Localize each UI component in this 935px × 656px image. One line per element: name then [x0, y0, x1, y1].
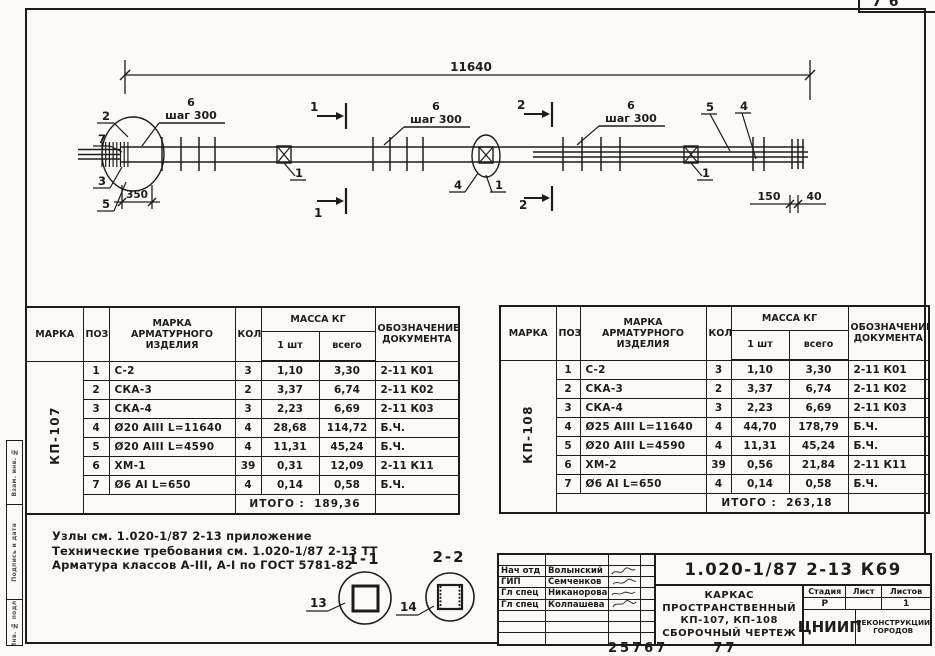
step-label-3: 6 шаг 300: [577, 99, 665, 145]
pos-callout-5: 5: [102, 197, 110, 211]
staff-name: Никанорова: [546, 588, 609, 598]
staff-row: Гл спец Никанорова: [499, 588, 654, 599]
spec-row: 6 ХМ-2 39 0,56 21,84 2-11 К11: [500, 455, 929, 474]
cell-item: Ø20 АIII L=4590: [109, 437, 235, 456]
cell-mass-one: 3,37: [261, 380, 319, 399]
cell-doc: Б.Ч.: [375, 475, 459, 494]
dim-150-label: 150: [758, 190, 781, 203]
cell-doc: Б.Ч.: [848, 436, 929, 455]
cell-mass-one: 1,10: [731, 360, 789, 379]
cell-item: СКА-4: [109, 399, 235, 418]
cell-qty: 4: [235, 475, 261, 494]
side-stamp-box: Инв. № подл.: [6, 599, 23, 646]
header-mark: МАРКА: [500, 306, 556, 360]
cell-mass-one: 11,31: [261, 437, 319, 456]
side-stamp-box: Подпись и дата: [6, 504, 23, 599]
header-pos: ПОЗ: [83, 307, 109, 361]
signature: [609, 600, 641, 610]
beam-assembly-drawing: 11640 2 7 3 5: [23, 10, 928, 302]
cell-item: СКА-3: [109, 380, 235, 399]
fixing-plate-2-circled: 4 1: [449, 135, 506, 192]
section-mark-1-top: 1: [310, 100, 346, 129]
cell-pos: 4: [83, 418, 109, 437]
cell-mass-total: 3,30: [319, 361, 375, 380]
header-mass-one: 1 шт: [731, 330, 789, 360]
cell-mass-one: 0,56: [731, 455, 789, 474]
cell-mass-one: 0,14: [261, 475, 319, 494]
cell-mass-one: 1,10: [261, 361, 319, 380]
cell-item: Ø6 АI L=650: [109, 475, 235, 494]
section-detail-1-1: 1-1 13: [306, 550, 391, 624]
cell-pos: 5: [556, 436, 580, 455]
cell-doc: Б.Ч.: [848, 474, 929, 493]
cell-mass-total: 45,24: [789, 436, 848, 455]
empty-cell: [83, 494, 235, 514]
cell-qty: 4: [235, 437, 261, 456]
cell-qty: 39: [235, 456, 261, 475]
pos-callout-6: 6: [187, 96, 195, 109]
spec-total-row: ИТОГО : 189,36: [26, 494, 459, 514]
pos-callout-2: 2: [102, 109, 110, 123]
cell-item: Ø6 АI L=650: [580, 474, 706, 493]
header-mass: МАССА КГ: [731, 306, 848, 330]
header-mass: МАССА КГ: [261, 307, 375, 331]
cell-qty: 2: [706, 379, 731, 398]
cell-mass-one: 3,37: [731, 379, 789, 398]
section-1-1-title: 1-1: [347, 550, 380, 568]
side-stamp-label: Взам. инв. №: [11, 448, 18, 497]
mark-cell: КП-108: [500, 360, 556, 513]
total-value: 263,18: [786, 497, 833, 509]
stage-value: Р: [804, 598, 846, 609]
header-item: МАРКА АРМАТУРНОГО ИЗДЕЛИЯ: [109, 307, 235, 361]
cell-doc: 2-11 К03: [375, 399, 459, 418]
empty-cell: [556, 493, 706, 513]
cell-mass-total: 3,30: [789, 360, 848, 379]
pos-callout-5: 5: [706, 100, 714, 114]
cell-item: Ø20 АIII L=4590: [580, 436, 706, 455]
cell-qty: 4: [235, 418, 261, 437]
header-doc: ОБОЗНАЧЕНИЕ ДОКУМЕНТА: [375, 307, 459, 361]
spec-table-kp107: МАРКА ПОЗ МАРКА АРМАТУРНОГО ИЗДЕЛИЯ КОЛ …: [25, 306, 460, 515]
spec-row: КП-107 1 С-2 3 1,10 3,30 2-11 К01: [26, 361, 459, 380]
cell-pos: 2: [83, 380, 109, 399]
cell-mass-total: 45,24: [319, 437, 375, 456]
staff-role: Нач отд: [499, 566, 546, 576]
callout-14: 14: [400, 600, 417, 614]
header-qty: КОЛ: [706, 306, 731, 360]
cell-doc: 2-11 К02: [375, 380, 459, 399]
spec-row: 7 Ø6 АI L=650 4 0,14 0,58 Б.Ч.: [500, 474, 929, 493]
header-pos: ПОЗ: [556, 306, 580, 360]
cell-qty: 39: [706, 455, 731, 474]
step-300-label: шаг 300: [605, 112, 657, 125]
cell-qty: 4: [706, 436, 731, 455]
cell-mass-total: 21,84: [789, 455, 848, 474]
cell-doc: 2-11 К03: [848, 398, 929, 417]
cell-pos: 7: [556, 474, 580, 493]
staff-name: Волынский: [546, 566, 609, 576]
sheet-value: [846, 598, 882, 609]
pos-callout-1: 1: [295, 166, 303, 180]
header-mass-total: всего: [319, 331, 375, 361]
signature: [609, 588, 641, 598]
cell-item: ХМ-2: [580, 455, 706, 474]
staff-name: Семченков: [546, 577, 609, 587]
cell-pos: 3: [83, 399, 109, 418]
cell-mass-one: 44,70: [731, 417, 789, 436]
cell-pos: 2: [556, 379, 580, 398]
header-mass-one: 1 шт: [261, 331, 319, 361]
pos-callout-7: 7: [98, 132, 106, 146]
cell-item: ХМ-1: [109, 456, 235, 475]
spec-row: 6 ХМ-1 39 0,31 12,09 2-11 К11: [26, 456, 459, 475]
sheets-value: 1: [882, 598, 930, 609]
total-cell: ИТОГО : 189,36: [235, 494, 375, 514]
section-mark-1-bottom: 1: [314, 188, 346, 220]
cell-mass-one: 2,23: [261, 399, 319, 418]
pos-callout-4: 4: [740, 99, 748, 113]
overall-dimension-label: 11640: [450, 60, 492, 74]
cell-mass-total: 6,69: [789, 398, 848, 417]
total-cell: ИТОГО : 263,18: [706, 493, 848, 513]
cell-qty: 3: [235, 361, 261, 380]
section-circle: [339, 572, 391, 624]
cell-mass-one: 2,23: [731, 398, 789, 417]
cell-pos: 7: [83, 475, 109, 494]
callout-13: 13: [310, 596, 327, 610]
total-label: ИТОГО :: [249, 498, 304, 510]
pos-callout-3: 3: [98, 174, 106, 188]
stage-header: Стадия: [804, 586, 846, 597]
cell-mass-total: 6,74: [319, 380, 375, 399]
spec-row: 4 Ø25 АIII L=11640 4 44,70 178,79 Б.Ч.: [500, 417, 929, 436]
cell-qty: 2: [235, 380, 261, 399]
mark-label: КП-108: [521, 405, 535, 464]
side-stamp: Взам. инв. № Подпись и дата Инв. № подл.: [6, 440, 23, 646]
header-item: МАРКА АРМАТУРНОГО ИЗДЕЛИЯ: [580, 306, 706, 360]
position-callouts-right: 5 4: [701, 99, 756, 159]
cell-doc: Б.Ч.: [375, 437, 459, 456]
cell-mass-one: 0,14: [731, 474, 789, 493]
header-mass-total: всего: [789, 330, 848, 360]
staff-row: Гл спец Колпашева: [499, 600, 654, 611]
fixing-plate-1: 1: [277, 146, 306, 180]
organization-subtitle: РЕКОНСТРУКЦИИ ГОРОДОВ: [856, 610, 930, 644]
mark-label: КП-107: [48, 406, 62, 465]
pos-callout-1: 1: [495, 178, 503, 192]
signature: [609, 577, 641, 587]
dim-350-label: 350: [126, 189, 148, 201]
section-circle: [426, 573, 474, 621]
section-1-label: 1: [310, 100, 318, 114]
header-qty: КОЛ: [235, 307, 261, 361]
spec-table-kp108: МАРКА ПОЗ МАРКА АРМАТУРНОГО ИЗДЕЛИЯ КОЛ …: [499, 305, 930, 514]
section-detail-2-2: 2-2 14: [396, 548, 474, 621]
pos-callout-6: 6: [627, 99, 635, 112]
document-number: 1.020-1/87 2-13 К69: [656, 555, 930, 586]
cell-mass-total: 114,72: [319, 418, 375, 437]
cell-qty: 3: [706, 398, 731, 417]
cell-item: СКА-3: [580, 379, 706, 398]
signature: [609, 566, 641, 576]
spec-row: 2 СКА-3 2 3,37 6,74 2-11 К02: [26, 380, 459, 399]
cell-mass-total: 0,58: [789, 474, 848, 493]
spec-row: 3 СКА-4 3 2,23 6,69 2-11 К03: [500, 398, 929, 417]
dim-40-label: 40: [806, 190, 822, 203]
cell-item: С-2: [580, 360, 706, 379]
section-mark-2-bottom: 2: [519, 186, 552, 212]
staff-role: ГИП: [499, 577, 546, 587]
staff-name: Колпашева: [546, 600, 609, 610]
note-line: Узлы см. 1.020-1/87 2-13 приложение: [52, 529, 378, 544]
cell-pos: 4: [556, 417, 580, 436]
step-300-label: шаг 300: [410, 113, 462, 126]
cell-mass-one: 11,31: [731, 436, 789, 455]
mark-cell: КП-107: [26, 361, 83, 514]
page-number: 76: [872, 0, 935, 10]
cell-mass-total: 178,79: [789, 417, 848, 436]
cell-doc: Б.Ч.: [375, 418, 459, 437]
header-doc: ОБОЗНАЧЕНИЕ ДОКУМЕНТА: [848, 306, 929, 360]
title-block-staff: Нач отд Волынский ГИП Семченков Гл спец …: [499, 555, 656, 644]
cell-mass-total: 6,74: [789, 379, 848, 398]
cell-pos: 5: [83, 437, 109, 456]
cell-pos: 1: [83, 361, 109, 380]
pos-callout-4: 4: [454, 178, 462, 192]
cell-qty: 3: [235, 399, 261, 418]
position-callouts-left: 2 7 3 5: [93, 109, 128, 211]
drawing-sheet: { "page": { "sheet_number": "76", "archi…: [0, 0, 935, 652]
section-1-label: 1: [314, 206, 322, 220]
cell-doc: 2-11 К11: [375, 456, 459, 475]
cell-doc: 2-11 К11: [848, 455, 929, 474]
spec-row: 7 Ø6 АI L=650 4 0,14 0,58 Б.Ч.: [26, 475, 459, 494]
section-2-2-title: 2-2: [432, 548, 465, 566]
section-2-label: 2: [517, 98, 525, 112]
spec-row: КП-108 1 С-2 3 1,10 3,30 2-11 К01: [500, 360, 929, 379]
staff-row: Нач отд Волынский: [499, 566, 654, 577]
cell-pos: 6: [83, 456, 109, 475]
cell-mass-one: 0,31: [261, 456, 319, 475]
cell-item: Ø25 АIII L=11640: [580, 417, 706, 436]
cell-qty: 4: [706, 474, 731, 493]
title-block: Нач отд Волынский ГИП Семченков Гл спец …: [497, 553, 932, 646]
section-details: 1-1 13 2-2 14: [300, 547, 510, 652]
staff-row: ГИП Семченков: [499, 577, 654, 588]
cell-item: С-2: [109, 361, 235, 380]
step-label-1: 6 шаг 300: [142, 96, 225, 146]
cell-doc: Б.Ч.: [848, 417, 929, 436]
organization-logo: ЦНИИП: [804, 610, 856, 644]
total-label: ИТОГО :: [721, 497, 776, 509]
spec-row: 4 Ø20 АIII L=11640 4 28,68 114,72 Б.Ч.: [26, 418, 459, 437]
fixing-plate-3: 1: [684, 146, 713, 180]
dimension-150-40: 150 40: [750, 190, 826, 213]
spec-row: 2 СКА-3 2 3,37 6,74 2-11 К02: [500, 379, 929, 398]
staff-role: Гл спец: [499, 588, 546, 598]
cell-doc: 2-11 К01: [375, 361, 459, 380]
cell-mass-total: 12,09: [319, 456, 375, 475]
section-mark-2-top: 2: [517, 98, 552, 127]
sheets-header: Листов: [882, 586, 930, 597]
empty-cell: [848, 493, 929, 513]
cell-pos: 3: [556, 398, 580, 417]
cell-pos: 6: [556, 455, 580, 474]
drawing-title: КАРКАС ПРОСТРАНСТВЕННЫЙ КП-107, КП-108 С…: [656, 586, 804, 644]
cell-item: СКА-4: [580, 398, 706, 417]
cell-qty: 3: [706, 360, 731, 379]
step-label-2: 6 шаг 300: [384, 100, 470, 145]
side-stamp-label: Подпись и дата: [11, 523, 18, 582]
section-2-label: 2: [519, 198, 527, 212]
empty-cell: [375, 494, 459, 514]
cell-mass-total: 6,69: [319, 399, 375, 418]
staff-role: Гл спец: [499, 600, 546, 610]
pos-callout-1: 1: [702, 166, 710, 180]
cell-qty: 4: [706, 417, 731, 436]
cell-mass-one: 28,68: [261, 418, 319, 437]
spec-row: 5 Ø20 АIII L=4590 4 11,31 45,24 Б.Ч.: [26, 437, 459, 456]
overall-dimension: 11640: [120, 60, 815, 100]
total-value: 189,36: [314, 498, 361, 510]
archive-number: 25767 77: [608, 641, 737, 656]
pos-callout-6: 6: [432, 100, 440, 113]
step-300-label: шаг 300: [165, 109, 217, 122]
spec-row: 3 СКА-4 3 2,23 6,69 2-11 К03: [26, 399, 459, 418]
spec-row: 5 Ø20 АIII L=4590 4 11,31 45,24 Б.Ч.: [500, 436, 929, 455]
cell-item: Ø20 АIII L=11640: [109, 418, 235, 437]
cell-pos: 1: [556, 360, 580, 379]
header-mark: МАРКА: [26, 307, 83, 361]
cell-doc: 2-11 К01: [848, 360, 929, 379]
sheet-header: Лист: [846, 586, 882, 597]
side-stamp-label: Инв. № подл.: [11, 599, 18, 646]
side-stamp-box: Взам. инв. №: [6, 440, 23, 504]
spec-total-row: ИТОГО : 263,18: [500, 493, 929, 513]
cell-mass-total: 0,58: [319, 475, 375, 494]
cell-doc: 2-11 К02: [848, 379, 929, 398]
